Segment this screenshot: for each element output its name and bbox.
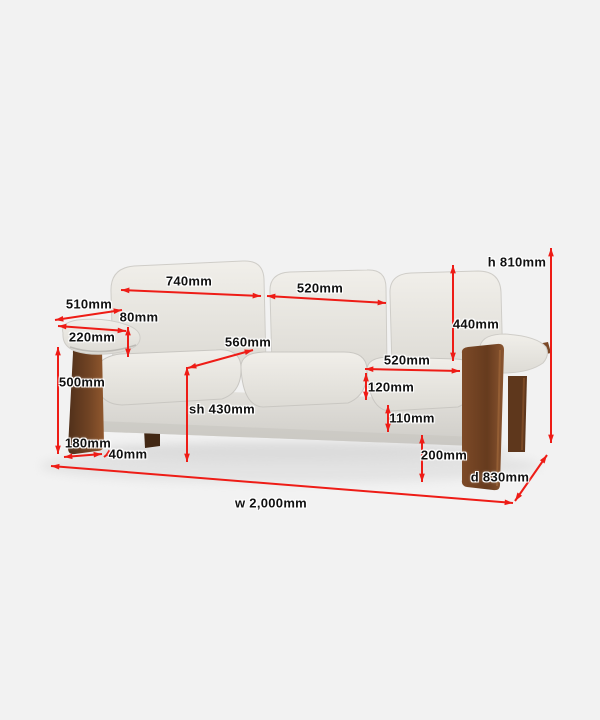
sofa-illustration <box>0 0 600 720</box>
seat-cushions <box>96 350 478 411</box>
dimension-diagram: 740mm 520mm 510mm 80mm 220mm 560mm 500mm… <box>0 0 600 720</box>
